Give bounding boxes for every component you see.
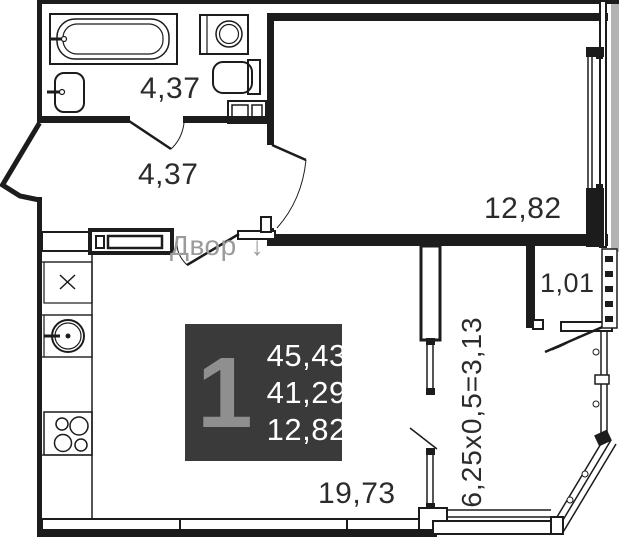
courtyard-text: Двор [170, 230, 237, 262]
washing-machine [200, 15, 248, 54]
kitchen-cabinet [44, 262, 92, 303]
bathtub [50, 14, 177, 64]
wardrobe [90, 230, 172, 253]
hallway-area-label: 4,37 [138, 158, 198, 192]
unit-info-card: 1 45,43 41,29 12,82 [185, 324, 342, 461]
niche-area-label: 1,01 [540, 268, 595, 299]
living-area: 41,29 [267, 374, 347, 411]
edge-strip [611, 0, 619, 252]
stove [44, 412, 92, 455]
bathroom-area-label: 4,37 [140, 72, 200, 106]
kitchen-living-area-label: 19,73 [318, 477, 396, 511]
unit-areas: 45,43 41,29 12,82 [267, 337, 347, 448]
kitchen-sink [44, 315, 92, 357]
floor-plan: 4,37 4,37 12,82 1,01 19,73 Двор ↓ 6,25x0… [0, 0, 619, 537]
vanity-cabinet [228, 101, 266, 123]
bedroom-area-label: 12,82 [484, 192, 562, 226]
kitchen-area: 12,82 [267, 411, 347, 448]
bathroom-sink [47, 73, 84, 112]
unit-number: 1 [197, 348, 253, 438]
down-arrow-icon: ↓ [251, 231, 265, 262]
toilet [213, 60, 260, 94]
balcony-dimension-label: 6,25x0,5=3,13 [456, 316, 488, 507]
courtyard-label: Двор ↓ [170, 230, 264, 262]
kitchen-counter [42, 253, 92, 519]
total-area: 45,43 [267, 337, 347, 374]
